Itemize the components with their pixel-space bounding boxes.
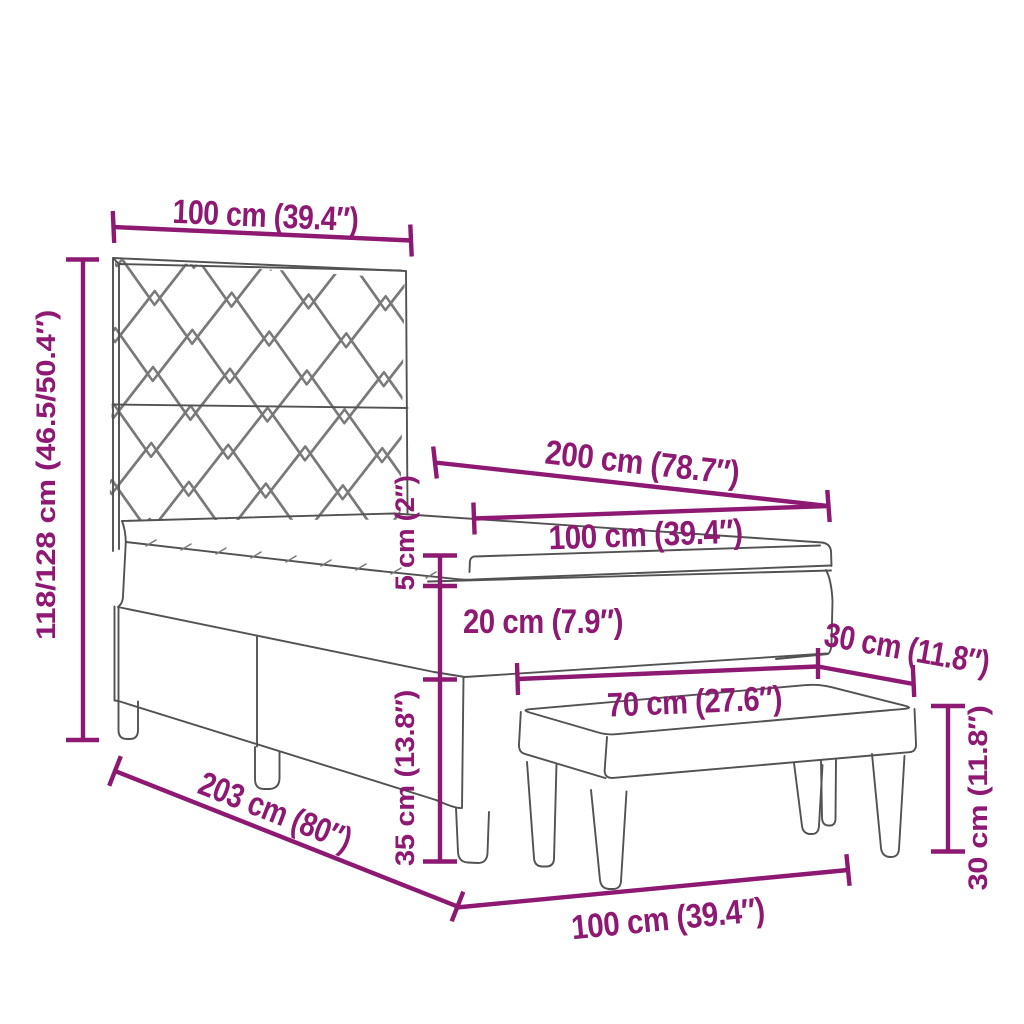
svg-text:100 cm (39.4″): 100 cm (39.4″): [548, 513, 743, 558]
svg-text:30 cm (11.8″): 30 cm (11.8″): [963, 706, 993, 891]
svg-text:70 cm (27.6″): 70 cm (27.6″): [606, 679, 782, 724]
svg-text:5 cm (2″): 5 cm (2″): [390, 476, 420, 591]
svg-text:20 cm (7.9″): 20 cm (7.9″): [463, 603, 623, 641]
svg-text:35 cm (13.8″): 35 cm (13.8″): [390, 690, 420, 866]
svg-text:118/128 cm (46.5/50.4″): 118/128 cm (46.5/50.4″): [31, 310, 61, 640]
